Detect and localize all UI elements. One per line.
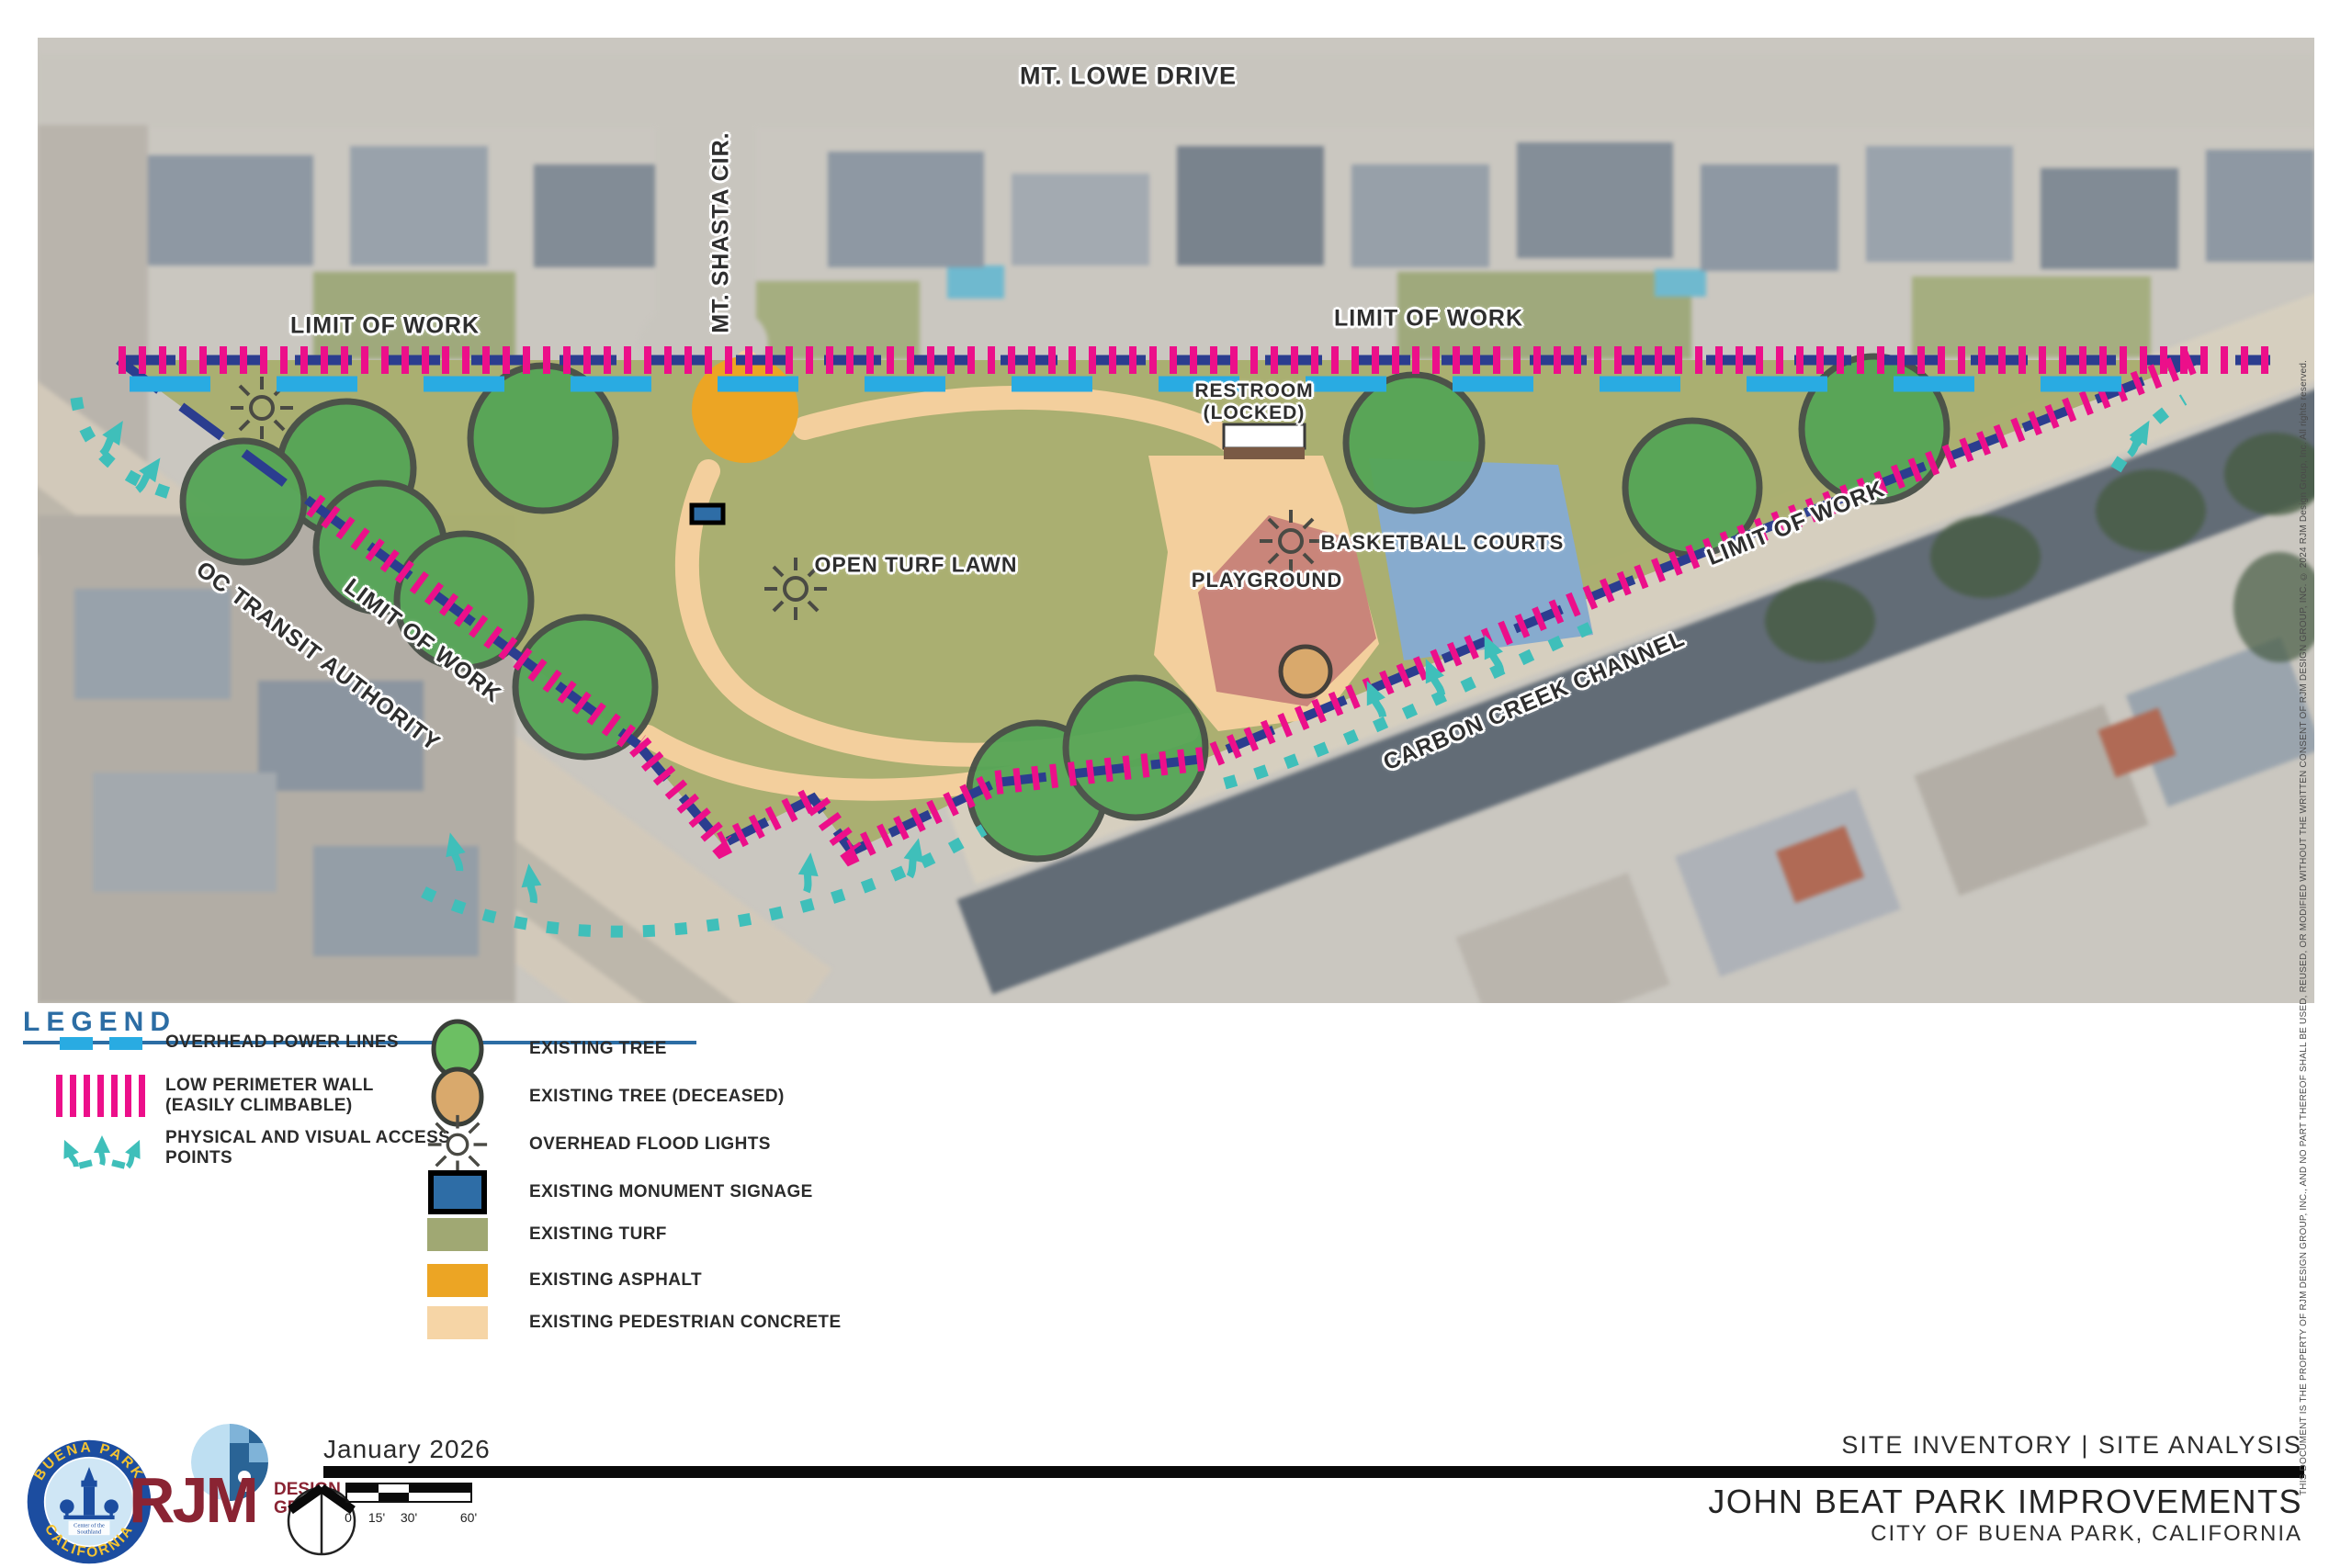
scale-tick-0: 0 xyxy=(345,1510,352,1525)
legend-label: EXISTING TREE (DECEASED) xyxy=(529,1087,785,1107)
project-location: CITY OF BUENA PARK, CALIFORNIA xyxy=(1871,1521,2302,1547)
legend-item-existing-asphalt: EXISTING ASPHALT xyxy=(424,1260,702,1301)
label-restroom-line1: RESTROOM xyxy=(1194,380,1313,402)
legend-item-existing-pedestrian-concrete: EXISTING PEDESTRIAN CONCRETE xyxy=(424,1303,842,1343)
legend-item-access-points: PHYSICAL AND VISUAL ACCESS POINTS xyxy=(48,1124,450,1172)
legend-label: EXISTING TURF xyxy=(529,1224,667,1245)
existing-turf-icon xyxy=(424,1218,491,1251)
legend-label: EXISTING ASPHALT xyxy=(529,1270,702,1291)
legend-label: PHYSICAL AND VISUAL ACCESS xyxy=(165,1128,450,1148)
label-limit-of-work-top-left: LIMIT OF WORK xyxy=(290,313,480,340)
scale-bar-graphic xyxy=(345,1483,472,1503)
label-limit-of-work-top-right: LIMIT OF WORK xyxy=(1334,306,1523,333)
legend-label-line2: POINTS xyxy=(165,1148,450,1168)
rjm-wordmark: RJM xyxy=(129,1468,256,1532)
legend-item-existing-turf: EXISTING TURF xyxy=(424,1214,667,1255)
legend-label: OVERHEAD FLOOD LIGHTS xyxy=(529,1134,771,1155)
deceased-tree xyxy=(1281,647,1330,696)
monument-signage xyxy=(692,505,723,523)
existing-asphalt-icon xyxy=(424,1264,491,1297)
park-overlay-graphics xyxy=(38,38,2314,1003)
sheet-date: January 2026 xyxy=(323,1435,491,1464)
label-restroom-line2: (LOCKED) xyxy=(1194,402,1313,424)
legend-item-low-perimeter-wall: LOW PERIMETER WALL (EASILY CLIMBABLE) xyxy=(48,1073,374,1119)
existing-pedestrian-concrete-icon xyxy=(424,1306,491,1339)
overhead-power-lines-icon xyxy=(48,1033,156,1052)
legend-label: OVERHEAD POWER LINES xyxy=(165,1032,399,1053)
project-title: JOHN BEAT PARK IMPROVEMENTS xyxy=(1708,1483,2302,1521)
low-perimeter-wall-icon xyxy=(48,1073,156,1119)
site-plan-map: MT. LOWE DRIVE MT. SHASTA CIR. LIMIT OF … xyxy=(38,38,2314,1003)
legend-label: EXISTING TREE xyxy=(529,1039,667,1059)
scale-bar: 0 15' 30' 60' xyxy=(345,1483,472,1529)
scale-tick-15: 15' xyxy=(368,1510,385,1525)
plan-sheet: MT. LOWE DRIVE MT. SHASTA CIR. LIMIT OF … xyxy=(0,0,2352,1568)
legend-item-existing-monument-signage: EXISTING MONUMENT SIGNAGE xyxy=(424,1168,813,1216)
label-mt-shasta-cir: MT. SHASTA CIR. xyxy=(708,131,735,333)
scale-tick-60: 60' xyxy=(460,1510,477,1525)
title-block-divider-bar xyxy=(323,1466,2304,1478)
legend-label-line2: (EASILY CLIMBABLE) xyxy=(165,1096,374,1116)
existing-monument-signage-icon xyxy=(424,1170,491,1214)
legend-label: LOW PERIMETER WALL xyxy=(165,1076,374,1096)
access-points-icon xyxy=(48,1124,156,1172)
label-basketball-courts: BASKETBALL COURTS xyxy=(1321,531,1565,555)
legend-label: EXISTING PEDESTRIAN CONCRETE xyxy=(529,1313,842,1333)
seal-motto-line2: Southland xyxy=(77,1529,102,1536)
label-mt-lowe-drive: MT. LOWE DRIVE xyxy=(1020,62,1237,91)
restroom-building xyxy=(1224,424,1305,459)
copyright-notice: THIS DOCUMENT IS THE PROPERTY OF RJM DES… xyxy=(2299,614,2319,1495)
scale-tick-30: 30' xyxy=(401,1510,417,1525)
seal-motto-line1: Center of the xyxy=(73,1523,105,1529)
label-open-turf-lawn: OPEN TURF LAWN xyxy=(815,553,1018,578)
label-playground: PLAYGROUND xyxy=(1192,569,1342,592)
label-restroom: RESTROOM (LOCKED) xyxy=(1194,380,1313,424)
sheet-title: SITE INVENTORY | SITE ANALYSIS xyxy=(1841,1431,2302,1460)
legend-item-overhead-flood-lights: OVERHEAD FLOOD LIGHTS xyxy=(424,1117,771,1172)
legend-label: EXISTING MONUMENT SIGNAGE xyxy=(529,1182,813,1202)
legend-item-overhead-power-lines: OVERHEAD POWER LINES xyxy=(48,1032,399,1053)
